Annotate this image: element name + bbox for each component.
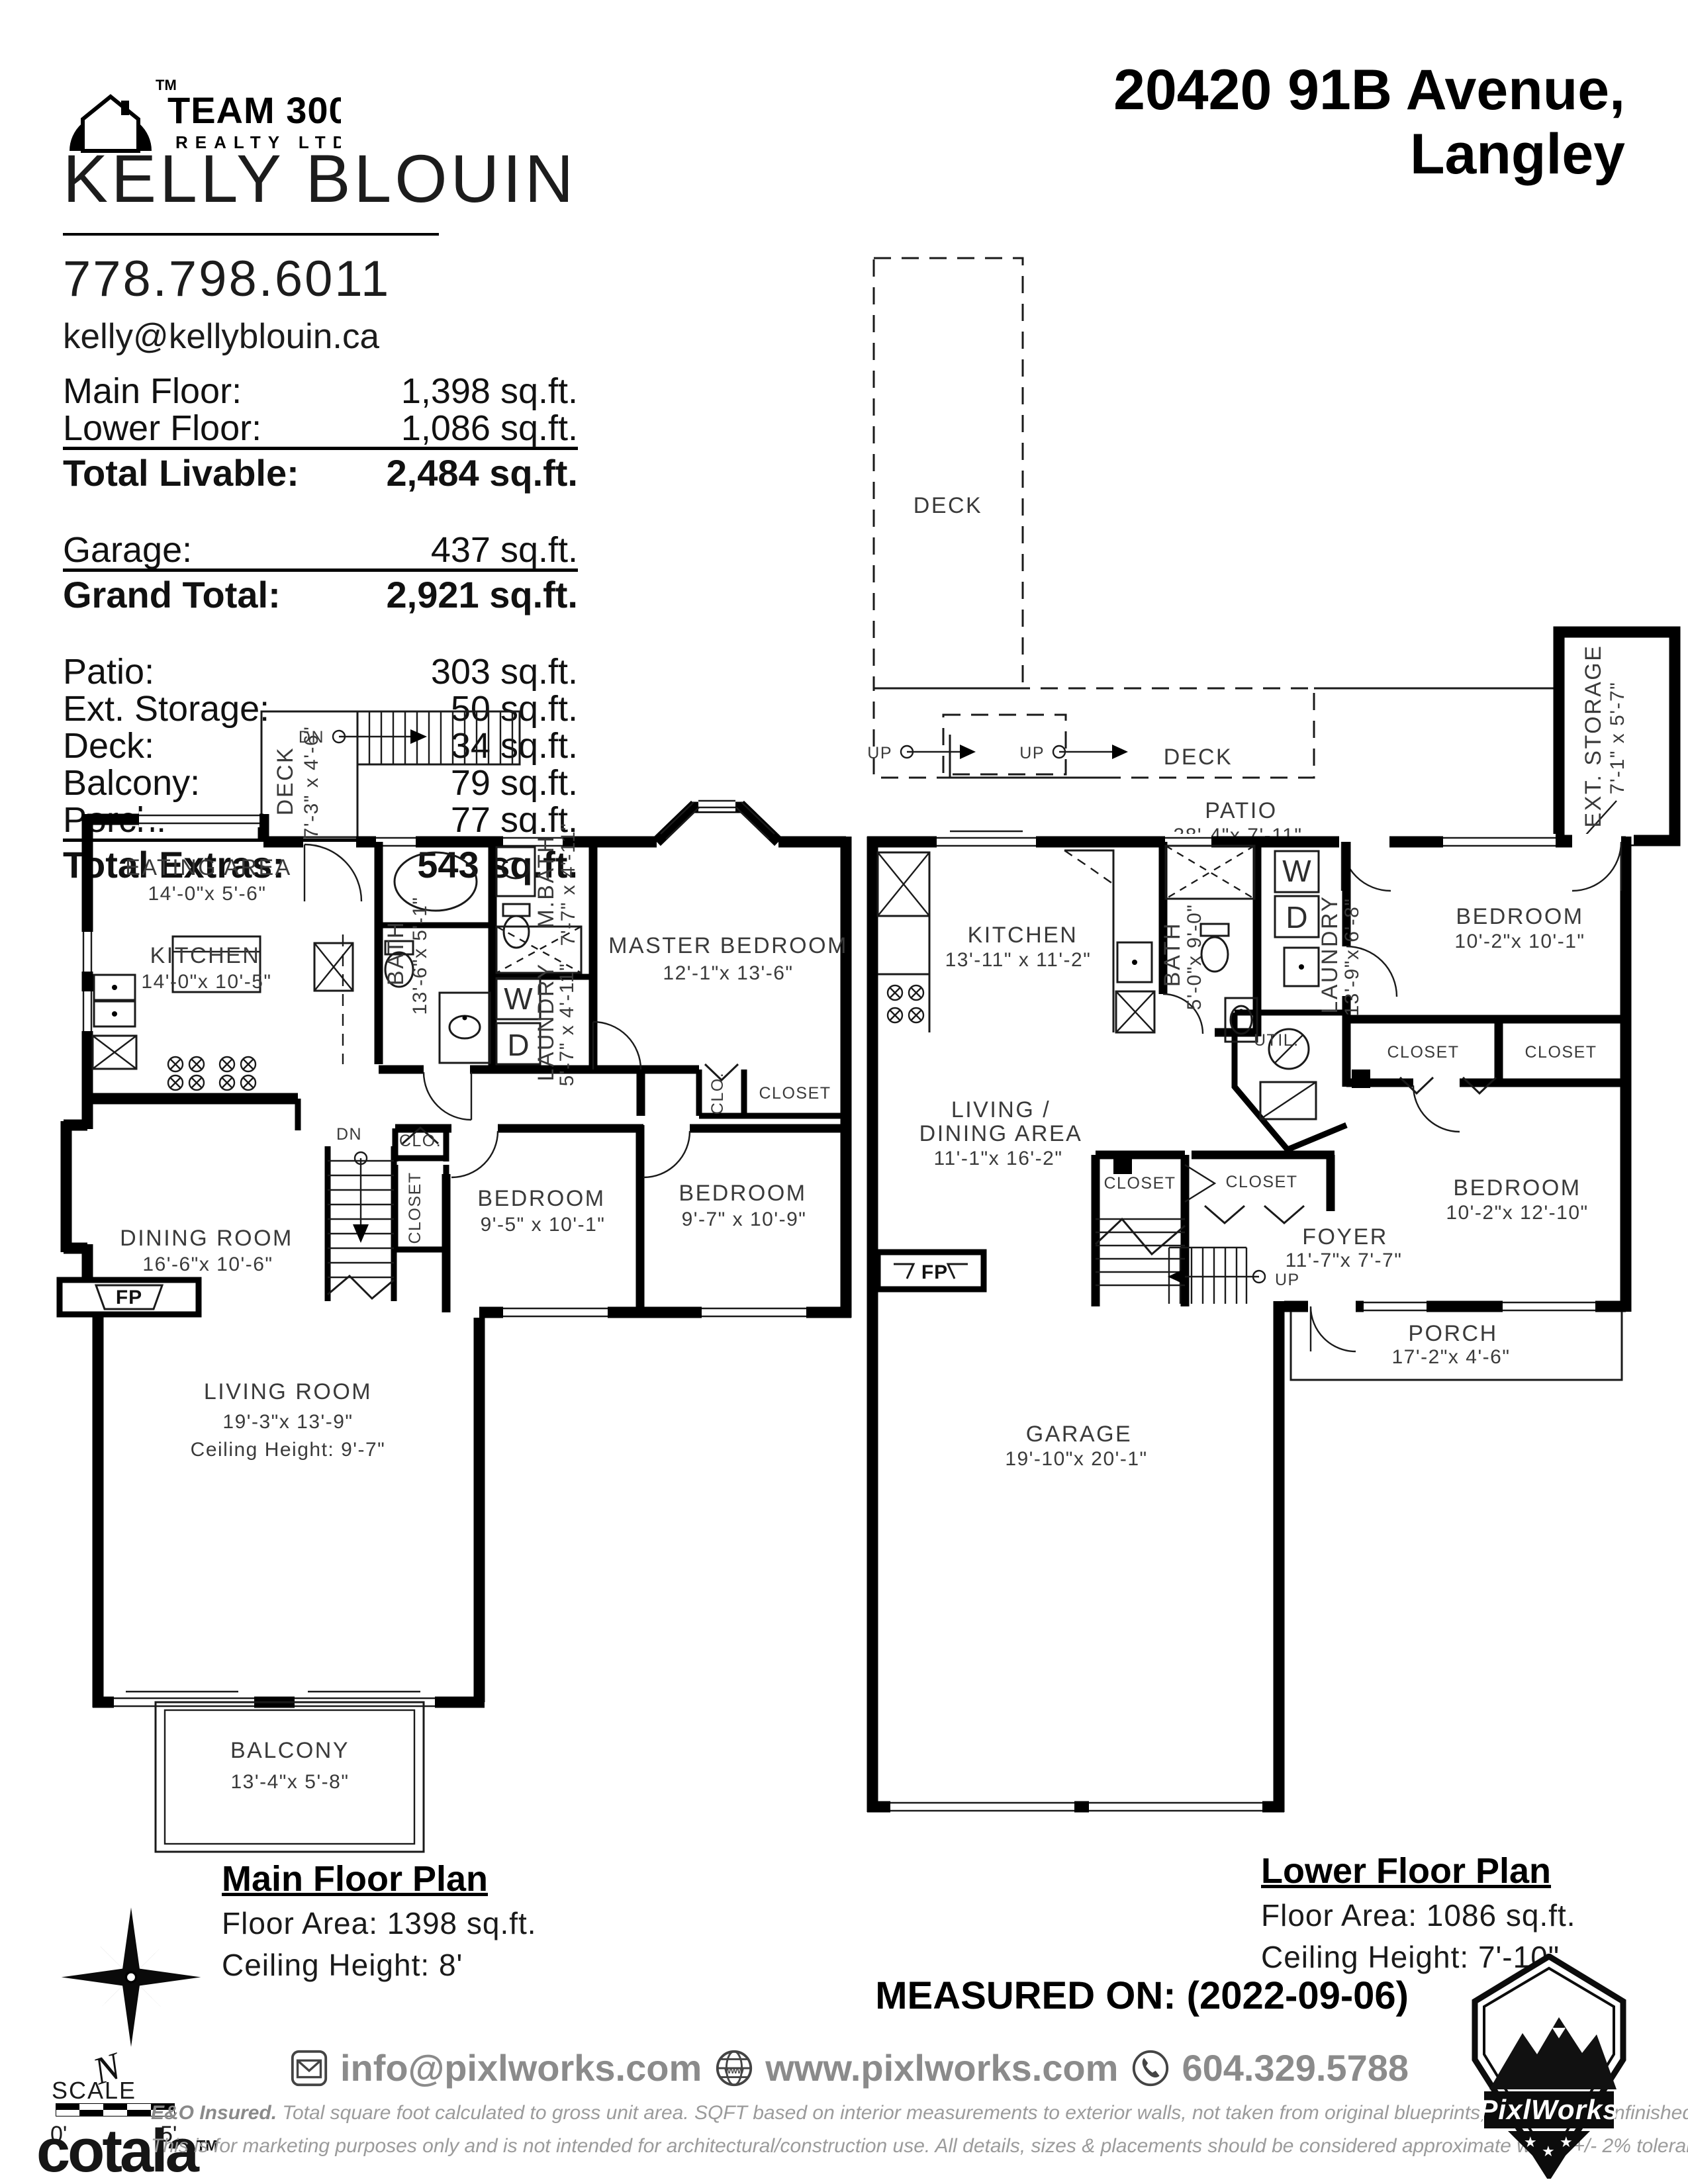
laundry-dims: 5'-7" x 4'-11" [556, 963, 578, 1087]
svg-text:★: ★ [1560, 2134, 1573, 2150]
closet-label: CLOSET [759, 1084, 831, 1103]
up-label: UP [1019, 744, 1045, 762]
balcony-dims: 13'-4"x 5'-8" [231, 1771, 350, 1793]
bedroom2-name: BEDROOM [679, 1181, 806, 1206]
agent-email: kelly@kellyblouin.ca [63, 316, 379, 357]
living-ceiling: Ceiling Height: 9'-7" [191, 1439, 386, 1461]
disclaimer-line1: E&O Insured. Total square foot calculate… [151, 2102, 1409, 2124]
row-label: Patio: [63, 651, 154, 692]
measured-on: MEASURED ON: (2022-09-06) [614, 1974, 1409, 2018]
kitchen-dims: 14'-0"x 10'-5" [141, 971, 271, 993]
contact-row: info@pixlworks.com www www.pixlworks.com… [289, 2046, 1409, 2089]
porch-name: PORCH [1408, 1321, 1497, 1346]
dining-name: DINING ROOM [120, 1226, 293, 1251]
row-label: Grand Total: [63, 573, 281, 616]
washer-label: W [504, 981, 533, 1016]
balcony-name: BALCONY [230, 1738, 350, 1763]
closet-label: CLOSET [1225, 1173, 1297, 1191]
bedroom2-dims: 9'-7" x 10'-9" [682, 1208, 807, 1230]
compass-icon [58, 1906, 204, 2048]
laundry-dims: 13'-9"x 6'-8" [1341, 898, 1363, 1017]
up-label: UP [1275, 1271, 1300, 1289]
lower-decks: DECK DECK UP UP [867, 258, 1314, 778]
sink-icon [502, 858, 529, 878]
row-value: 303 sq.ft. [431, 651, 578, 692]
table-row: Main Floor:1,398 sq.ft. [63, 371, 578, 408]
row-label: Garage: [63, 529, 192, 570]
foyer-name: FOYER [1302, 1224, 1388, 1250]
stove-burners-icon [888, 985, 923, 1023]
address-line1: 20420 91B Avenue, [963, 58, 1625, 122]
bath-dims: 13'-6"x 5'-1" [409, 897, 431, 1015]
agent-name: KELLY BLOUIN [63, 140, 577, 218]
svg-text:★: ★ [1524, 2134, 1537, 2150]
kitchen-dims: 13'-11" x 11'-2" [945, 949, 1092, 971]
pixlworks-wordmark: PixlWorks [1479, 2094, 1618, 2125]
tub-icon [395, 852, 477, 911]
globe-icon: www [714, 2048, 755, 2089]
table-total-row: Grand Total:2,921 sq.ft. [63, 573, 578, 610]
living-dims: 19'-3"x 13'-9" [222, 1411, 353, 1433]
ext-storage-name: EXT. STORAGE [1581, 645, 1606, 828]
bath-name: BATH [1160, 922, 1185, 987]
bedroom1-d ims: 9'-5" x 10'-1" [481, 1214, 606, 1236]
email-icon [289, 2048, 330, 2089]
stove-burners-icon [168, 1057, 256, 1090]
row-value: 2,921 sq.ft. [387, 573, 578, 616]
deck-upper-name: DECK [914, 493, 982, 518]
table-gap [63, 488, 578, 529]
phone-block: 604.329.5788 [1130, 2046, 1409, 2089]
lower-floor-plan: DECK DECK UP UP EXT. STORAGE 7'-1" x 5'-… [854, 251, 1685, 1840]
deck-lower-name: DECK [1164, 745, 1233, 770]
closet-label: CLOSET [1103, 1174, 1176, 1193]
bedroom1-name: BEDROOM [1456, 904, 1583, 929]
main-floor-ceiling: Ceiling Height: 8' [222, 1947, 537, 1983]
eating-area-dims: 14'-0"x 5'-6" [148, 883, 267, 905]
kitchen-name: KITCHEN [968, 923, 1078, 948]
lower-floor-title: Lower Floor Plan [1261, 1850, 1576, 1891]
dn-arrow-icon [410, 729, 427, 744]
master-bedroom-name: MASTER BEDROOM [608, 933, 848, 958]
main-floor-plan: DN DECK 7'-3" x 4'-6" [40, 702, 861, 1866]
foyer-dims: 11'-7"x 7'-7" [1286, 1250, 1403, 1271]
living-name: LIVING ROOM [204, 1379, 372, 1404]
garage-name: GARAGE [1026, 1422, 1132, 1447]
main-floor-area: Floor Area: 1398 sq.ft. [222, 1905, 537, 1941]
fireplace-label: FP [116, 1287, 142, 1308]
table-total-row: Total Livable:2,484 sq.ft. [63, 451, 578, 488]
table-gap [63, 610, 578, 651]
row-value: 1,086 sq.ft. [401, 408, 578, 449]
bedroom2-name: BEDROOM [1453, 1175, 1581, 1201]
lower-outer-walls [867, 837, 1626, 1812]
website-block: www www.pixlworks.com [714, 2046, 1118, 2089]
patio-name: PATIO [1205, 798, 1277, 823]
up-label: UP [867, 744, 892, 762]
garage-dims: 19'-10"x 20'-1" [1005, 1448, 1147, 1470]
eating-area-name: EATING AREA [125, 855, 292, 880]
living-dims: 11'-1"x 16'-2" [934, 1148, 1063, 1169]
disclaimer-line2: This is for marketing purposes only and … [151, 2135, 1409, 2158]
patio-ext-storage: EXT. STORAGE 7'-1" x 5'-7" [1314, 632, 1675, 844]
toilet-icon [1201, 937, 1228, 972]
dryer-label: D [1286, 900, 1307, 934]
bedroom2-dims: 10'-2"x 12'-10" [1446, 1202, 1588, 1224]
bedroom1-name: BEDROOM [477, 1186, 605, 1211]
master-bedroom-dims: 12'-1"x 13'-6" [663, 962, 793, 984]
svg-text:★: ★ [1542, 2143, 1555, 2160]
pixlworks-badge: PixlWorks ★ ★ ★ [1423, 1954, 1675, 2179]
main-floor-title: Main Floor Plan [222, 1858, 537, 1899]
table-row: Patio:303 sq.ft. [63, 651, 578, 688]
email-text: info@pixlworks.com [340, 2046, 702, 2089]
website-text: www.pixlworks.com [765, 2046, 1118, 2089]
laundry-name: LAUNDRY [534, 962, 559, 1081]
row-value: 2,484 sq.ft. [387, 451, 578, 494]
phone-text: 604.329.5788 [1182, 2046, 1409, 2089]
lower-fireplace: FP [878, 1252, 984, 1289]
agent-phone: 778.798.6011 [63, 250, 391, 308]
table-row: Lower Floor:1,086 sq.ft. [63, 408, 578, 445]
lower-floor-area: Floor Area: 1086 sq.ft. [1261, 1897, 1576, 1933]
kitchen-name: KITCHEN [150, 943, 261, 968]
email-block: info@pixlworks.com [289, 2046, 702, 2089]
row-value: 1,398 sq.ft. [401, 371, 578, 412]
util-label: UTIL. [1254, 1031, 1299, 1050]
phone-icon [1130, 2048, 1171, 2089]
up-arrow-icon [1168, 1269, 1185, 1285]
up-arrow-icon [960, 745, 976, 759]
agent-underline [63, 233, 439, 236]
brand-team-text: TEAM 3000 [167, 89, 341, 131]
bath-name: BATH [383, 921, 408, 985]
main-stairs: DN [328, 1125, 394, 1301]
living-name1: LIVING / [951, 1097, 1051, 1122]
ext-storage-dims: 7'-1" x 5'-7" [1607, 682, 1628, 795]
table-row: Garage:437 sq.ft. [63, 529, 578, 567]
clo-label: CLO. [399, 1132, 442, 1150]
closet-label: CLOSET [1524, 1043, 1597, 1062]
main-floor-title-block: Main Floor Plan Floor Area: 1398 sq.ft. … [222, 1858, 537, 1983]
dryer-label: D [507, 1028, 529, 1062]
mbath-name: M.BATH [534, 835, 559, 929]
porch-dims: 17'-2"x 4'-6" [1392, 1346, 1511, 1368]
main-fireplace: FP [60, 1280, 199, 1314]
closet-label: CLOSET [1387, 1043, 1459, 1062]
closet-label: CLOSET [406, 1171, 424, 1244]
deck-name: DECK [273, 747, 298, 815]
svg-text:www: www [724, 2066, 745, 2075]
row-label: Lower Floor: [63, 408, 261, 449]
clo-label: CLO. [708, 1072, 727, 1115]
row-label: Main Floor: [63, 371, 242, 412]
floorplan-page: TM TEAM 3000 REALTY LTD KELLY BLOUIN 778… [0, 0, 1688, 2184]
row-value: 437 sq.ft. [431, 529, 578, 570]
laundry-name: LAUNDRY [1317, 895, 1342, 1013]
property-address: 20420 91B Avenue, Langley [963, 58, 1625, 187]
stairs-dn-label: DN [336, 1125, 362, 1144]
row-label: Total Livable: [63, 451, 299, 494]
fireplace-label: FP [921, 1261, 948, 1283]
address-line2: Langley [963, 122, 1625, 187]
main-deck: DN DECK 7'-3" x 4'-6" [261, 711, 520, 839]
up-arrow-icon [1112, 745, 1128, 759]
lower-stairs: UP [1096, 1219, 1300, 1304]
lower-laundry-fixtures: W D [1275, 851, 1319, 986]
bedroom1-dims: 10'-2"x 10'-1" [1454, 931, 1585, 952]
living-name2: DINING AREA [919, 1121, 1083, 1146]
dining-dims: 16'-6"x 10'-6" [142, 1253, 273, 1275]
deck-dims: 7'-3" x 4'-6" [301, 726, 322, 839]
scale-label: SCALE [52, 2077, 136, 2105]
chimney-icon [121, 101, 129, 115]
washer-label: W [1282, 854, 1311, 888]
bath-dims: 5'-0"x 9'-0" [1184, 904, 1205, 1011]
disclaimer-eo: E&O Insured. [151, 2102, 277, 2124]
mbath-dims: 7'-7" x 4'-11" [557, 823, 579, 946]
